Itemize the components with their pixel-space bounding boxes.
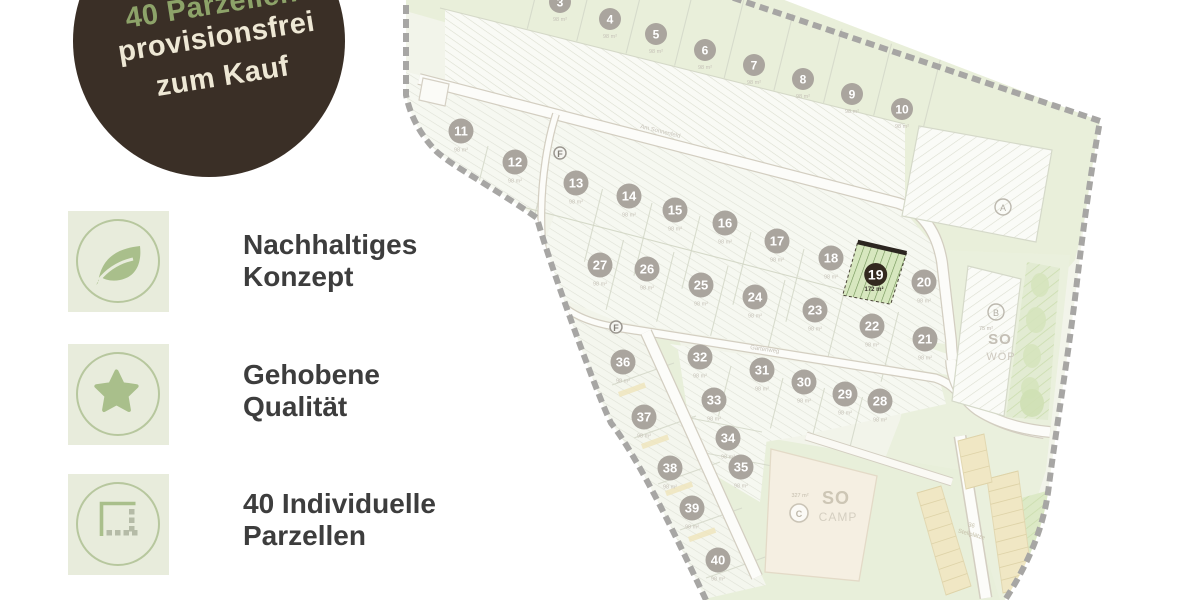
svg-text:7: 7 (751, 58, 758, 72)
svg-text:10: 10 (895, 102, 909, 116)
svg-text:98 m²: 98 m² (747, 80, 761, 86)
svg-text:25: 25 (694, 278, 708, 293)
svg-text:18: 18 (824, 251, 838, 266)
svg-text:8: 8 (800, 72, 807, 86)
svg-text:F: F (557, 149, 563, 159)
svg-text:98 m²: 98 m² (873, 418, 887, 424)
svg-text:98 m²: 98 m² (711, 577, 725, 583)
svg-text:33: 33 (707, 393, 721, 408)
svg-text:98 m²: 98 m² (553, 17, 567, 23)
svg-text:24: 24 (748, 290, 763, 305)
svg-text:35: 35 (734, 460, 748, 475)
svg-text:98 m²: 98 m² (637, 434, 651, 440)
svg-text:98 m²: 98 m² (770, 258, 784, 264)
svg-text:14: 14 (622, 189, 637, 204)
svg-text:22: 22 (865, 319, 879, 334)
svg-text:98 m²: 98 m² (668, 227, 682, 233)
svg-text:3: 3 (557, 0, 564, 9)
svg-text:32: 32 (693, 350, 707, 365)
svg-text:98 m²: 98 m² (698, 65, 712, 71)
svg-text:4: 4 (607, 12, 614, 26)
svg-text:98 m²: 98 m² (616, 379, 630, 385)
svg-text:5: 5 (653, 27, 660, 41)
svg-text:WÖP: WÖP (986, 351, 1015, 363)
svg-text:F: F (613, 323, 619, 333)
svg-text:CAMP: CAMP (819, 510, 858, 524)
svg-text:98 m²: 98 m² (797, 399, 811, 405)
svg-text:98 m²: 98 m² (640, 286, 654, 292)
svg-text:98 m²: 98 m² (707, 417, 721, 423)
svg-text:75 m²: 75 m² (979, 326, 993, 332)
svg-text:327 m²: 327 m² (791, 493, 808, 499)
svg-text:17: 17 (770, 234, 784, 249)
svg-text:98 m²: 98 m² (824, 275, 838, 281)
svg-text:98 m²: 98 m² (663, 485, 677, 491)
svg-text:38: 38 (663, 461, 677, 476)
svg-text:98 m²: 98 m² (838, 411, 852, 417)
svg-text:40: 40 (711, 553, 725, 568)
svg-text:98 m²: 98 m² (454, 148, 468, 154)
svg-text:20: 20 (917, 275, 931, 290)
svg-text:98 m²: 98 m² (718, 240, 732, 246)
svg-text:39: 39 (685, 501, 699, 516)
svg-text:98 m²: 98 m² (734, 484, 748, 490)
svg-text:98 m²: 98 m² (917, 299, 931, 305)
svg-text:37: 37 (637, 410, 651, 425)
svg-text:98 m²: 98 m² (918, 356, 932, 362)
svg-text:B: B (993, 308, 999, 318)
svg-text:98 m²: 98 m² (508, 179, 522, 185)
svg-text:98 m²: 98 m² (755, 387, 769, 393)
svg-text:16: 16 (718, 216, 732, 231)
svg-text:172 m²: 172 m² (864, 286, 883, 293)
svg-text:9: 9 (849, 87, 856, 101)
svg-text:98 m²: 98 m² (685, 525, 699, 531)
svg-text:SO: SO (822, 488, 850, 508)
svg-text:C: C (796, 509, 803, 519)
svg-text:SO: SO (988, 331, 1012, 348)
svg-text:12: 12 (508, 155, 522, 170)
svg-text:15: 15 (668, 203, 682, 218)
svg-text:A: A (1000, 203, 1006, 213)
svg-text:98 m²: 98 m² (649, 49, 663, 55)
svg-text:19: 19 (868, 267, 884, 283)
svg-text:98 m²: 98 m² (622, 213, 636, 219)
svg-text:11: 11 (454, 124, 468, 139)
svg-text:26: 26 (640, 262, 654, 277)
svg-text:34: 34 (721, 431, 736, 446)
svg-text:23: 23 (808, 303, 822, 318)
svg-text:98 m²: 98 m² (845, 109, 859, 115)
svg-text:98 m²: 98 m² (808, 327, 822, 333)
svg-text:29: 29 (838, 387, 852, 402)
svg-text:36: 36 (616, 355, 630, 370)
svg-text:13: 13 (569, 176, 583, 191)
svg-text:28: 28 (873, 394, 887, 409)
svg-text:30: 30 (797, 375, 811, 390)
svg-text:98 m²: 98 m² (895, 124, 909, 130)
svg-text:21: 21 (918, 332, 932, 347)
svg-text:31: 31 (755, 363, 769, 378)
svg-text:6: 6 (702, 43, 709, 57)
svg-text:98 m²: 98 m² (569, 200, 583, 206)
svg-text:98 m²: 98 m² (865, 343, 879, 349)
svg-text:98 m²: 98 m² (593, 282, 607, 288)
svg-text:27: 27 (593, 258, 607, 273)
svg-text:98 m²: 98 m² (796, 94, 810, 100)
svg-text:98 m²: 98 m² (693, 374, 707, 380)
svg-text:98 m²: 98 m² (603, 34, 617, 40)
svg-text:98 m²: 98 m² (748, 314, 762, 320)
svg-text:98 m²: 98 m² (694, 302, 708, 308)
